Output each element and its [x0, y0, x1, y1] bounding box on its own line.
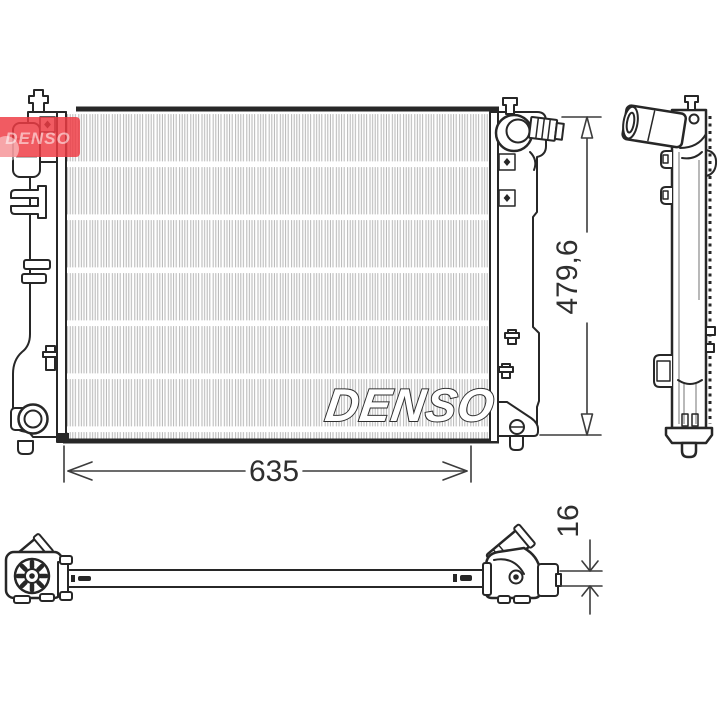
tank-face-left	[57, 112, 66, 442]
front-view: DENSO DENSO	[0, 90, 564, 454]
side-clip-lower	[661, 187, 672, 204]
bottom-core-bar	[62, 570, 487, 587]
thickness-dimension-label: 16	[552, 504, 585, 537]
left-fork-bracket	[11, 186, 46, 218]
bottom-view: 16	[5, 504, 602, 614]
right-clip-upper	[505, 330, 519, 344]
bottom-notch	[58, 433, 69, 442]
thickness-dimension: 16	[552, 504, 602, 614]
left-tab-upper	[24, 260, 50, 269]
side-bolt	[690, 115, 699, 124]
height-dimension: 479,6	[540, 117, 601, 435]
width-dimension: 635	[64, 446, 471, 488]
side-view	[621, 96, 716, 457]
bottom-right-fitting	[453, 524, 561, 603]
arrow-up-icon	[582, 117, 593, 138]
side-bracket	[654, 355, 672, 387]
denso-logo-badge: DENSO	[0, 117, 80, 162]
radiator-cap	[15, 559, 49, 593]
bar-clip-right	[453, 574, 457, 582]
height-dimension-label: 479,6	[551, 239, 584, 314]
denso-watermark: DENSO	[322, 379, 498, 431]
right-clip-lower	[499, 364, 513, 378]
side-foot	[666, 428, 712, 443]
denso-radiator-technical-drawing: DENSO DENSO 635 479,6	[0, 0, 720, 720]
right-top-mount-pin	[503, 98, 517, 114]
side-top-pin	[685, 96, 698, 110]
side-pin-upper	[706, 327, 715, 335]
right-foot-pin	[510, 436, 523, 450]
left-top-mount-pin	[29, 90, 48, 112]
bottom-left-fitting	[5, 533, 91, 603]
logo-text: DENSO	[5, 129, 70, 148]
side-clip-upper	[661, 151, 672, 168]
left-tab-lower	[22, 274, 46, 283]
arrow-down-icon	[582, 414, 593, 435]
width-dimension-label: 635	[249, 455, 299, 488]
side-drain-pin	[682, 443, 696, 457]
bar-clip-left	[71, 575, 75, 582]
left-drain-pin	[18, 441, 33, 454]
inlet-hose-nipple	[529, 117, 564, 142]
side-pin-lower	[706, 344, 714, 352]
